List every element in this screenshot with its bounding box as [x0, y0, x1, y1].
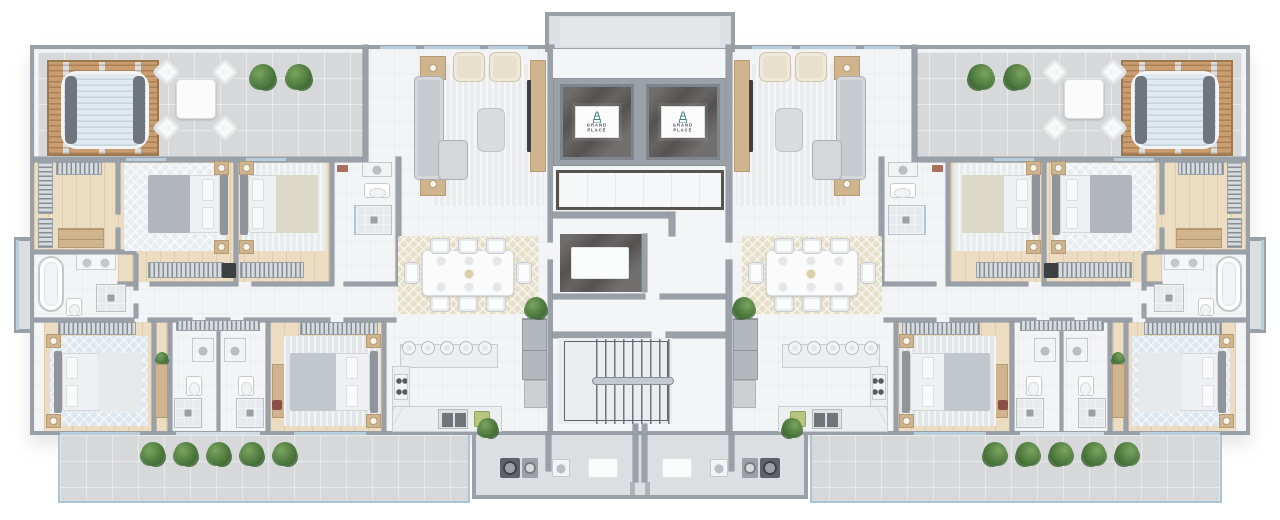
- nightstand: [1219, 334, 1234, 348]
- headboard: [1218, 351, 1226, 413]
- nightstand: [1219, 414, 1234, 428]
- indoor-plant: [782, 418, 802, 438]
- nightstand: [899, 414, 914, 428]
- armchair: [759, 52, 791, 82]
- hall-dresser: [1112, 364, 1125, 418]
- headboard: [902, 351, 910, 413]
- wardrobe: [1056, 262, 1132, 278]
- bed: [1052, 172, 1134, 236]
- window: [864, 46, 900, 49]
- pillow: [922, 357, 934, 379]
- headboard: [1032, 173, 1040, 235]
- wall: [1010, 322, 1014, 431]
- nightstand: [899, 334, 914, 348]
- dresser-plant: [1112, 352, 1124, 364]
- dining-chair: [774, 238, 794, 254]
- outdoor-dining-table: [1064, 79, 1104, 119]
- window: [1114, 158, 1154, 161]
- nightstand: [1026, 161, 1041, 175]
- headboard: [1052, 173, 1060, 235]
- shower: [1078, 398, 1106, 428]
- bar-stool: [826, 341, 840, 355]
- pillow: [1066, 207, 1078, 229]
- sofa-chaise: [812, 140, 842, 180]
- dining-chair: [802, 238, 822, 254]
- wall: [1142, 304, 1146, 318]
- bed: [960, 172, 1040, 236]
- kitchen-sink: [812, 409, 842, 429]
- bathtub: [1216, 256, 1242, 312]
- wall: [726, 260, 732, 431]
- window: [1261, 240, 1264, 330]
- dining-chair: [802, 296, 822, 312]
- pergola: [1121, 60, 1233, 156]
- nightstand: [1051, 161, 1066, 175]
- terrace-plant: [1004, 64, 1030, 90]
- balcony-plant: [1082, 442, 1106, 466]
- armchair: [795, 52, 827, 82]
- vanity: [888, 162, 918, 177]
- balcony-plant: [1016, 442, 1040, 466]
- dining-chair: [860, 262, 876, 284]
- pillow: [922, 385, 934, 407]
- wall: [1160, 228, 1164, 252]
- balcony-plant: [1115, 442, 1139, 466]
- blanket: [1138, 353, 1182, 411]
- tv-console: [734, 60, 750, 172]
- dining-chair: [774, 296, 794, 312]
- bar-stool: [864, 341, 878, 355]
- dining-chair: [830, 238, 850, 254]
- cooktop: [872, 374, 886, 400]
- kitchen-plant: [733, 297, 755, 319]
- bar-stool: [807, 341, 821, 355]
- closet-wardrobe: [1227, 218, 1242, 248]
- balcony: [810, 435, 1222, 503]
- terrace-plant: [968, 64, 994, 90]
- balcony-plant: [1049, 442, 1073, 466]
- wall: [912, 45, 917, 162]
- balcony-plant: [983, 442, 1007, 466]
- bar-stool: [845, 341, 859, 355]
- pillow: [1202, 357, 1214, 379]
- window: [800, 46, 856, 49]
- fridge: [733, 318, 758, 380]
- wall: [1060, 322, 1063, 431]
- pillow: [1066, 179, 1078, 201]
- dining-chair: [830, 296, 850, 312]
- window: [752, 46, 792, 49]
- nightstand: [1051, 240, 1066, 254]
- wall: [950, 282, 1028, 286]
- bath-stool: [932, 165, 943, 172]
- bath-sink: [1066, 338, 1088, 362]
- tall-cabinet: [733, 380, 756, 408]
- toilet: [1026, 376, 1042, 396]
- dresser-decor: [998, 400, 1008, 410]
- unit-right: [0, 0, 1280, 520]
- shower: [888, 205, 926, 235]
- wardrobe: [976, 262, 1040, 278]
- wardrobe: [1144, 322, 1222, 335]
- toilet: [1078, 376, 1094, 396]
- bed: [1134, 346, 1226, 418]
- toilet: [1198, 298, 1214, 316]
- tv-unit: [1044, 263, 1058, 278]
- bath-sink: [1034, 338, 1056, 362]
- daybed-cushion: [1135, 76, 1147, 144]
- toilet: [890, 183, 916, 198]
- wall: [1160, 157, 1164, 214]
- bed: [902, 346, 994, 418]
- blanket: [962, 175, 1004, 233]
- daybed-cushion: [1203, 76, 1215, 144]
- closet-shelf: [1178, 162, 1224, 175]
- wall: [1046, 282, 1130, 286]
- coffee-ottoman: [775, 108, 803, 152]
- bar-stool: [788, 341, 802, 355]
- pillow: [1202, 385, 1214, 407]
- pillow: [1016, 179, 1028, 201]
- closet-dresser: [1176, 228, 1222, 248]
- wall: [946, 157, 950, 286]
- pillow: [1016, 207, 1028, 229]
- dining-table: [766, 250, 858, 296]
- blanket: [944, 353, 990, 411]
- nightstand: [1026, 240, 1041, 254]
- closet-wardrobe: [1227, 162, 1242, 214]
- shower: [1016, 398, 1044, 428]
- wall: [726, 45, 732, 242]
- bath-shelf: [1020, 320, 1104, 331]
- floor-plan: GRAND PLACE GRAND PLACE: [0, 0, 1280, 520]
- wall: [894, 322, 898, 431]
- wall: [884, 282, 936, 286]
- blanket: [1090, 175, 1132, 233]
- shower: [1154, 284, 1184, 312]
- double-vanity: [1164, 254, 1204, 270]
- dining-chair: [748, 262, 764, 284]
- tv: [749, 80, 753, 152]
